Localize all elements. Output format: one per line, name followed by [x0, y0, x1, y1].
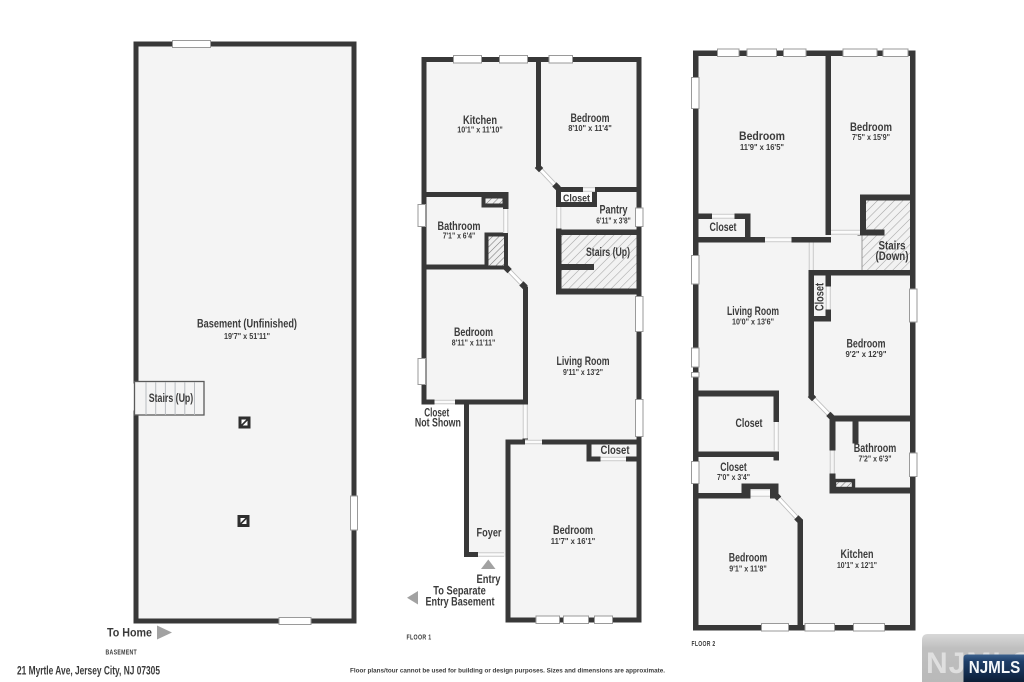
svg-text:Foyer: Foyer — [477, 528, 502, 540]
svg-text:7'0" x 3'4": 7'0" x 3'4" — [717, 472, 750, 482]
svg-text:Floor plans/tour cannot be use: Floor plans/tour cannot be used for buil… — [350, 668, 665, 675]
svg-text:Closet: Closet — [710, 222, 737, 234]
svg-text:11'7" x 16'1": 11'7" x 16'1" — [551, 536, 596, 546]
svg-text:FLOOR 1: FLOOR 1 — [407, 635, 432, 642]
svg-text:Not Shown: Not Shown — [415, 418, 461, 430]
svg-text:Closet: Closet — [736, 418, 763, 430]
svg-text:7'5" x 15'9": 7'5" x 15'9" — [852, 132, 890, 142]
svg-text:7'1" x 6'4": 7'1" x 6'4" — [443, 231, 476, 241]
svg-text:11'9" x 16'5": 11'9" x 16'5" — [740, 142, 784, 152]
svg-text:Basement (Unfinished): Basement (Unfinished) — [197, 319, 297, 331]
svg-text:10'0" x 13'6": 10'0" x 13'6" — [732, 317, 774, 327]
svg-text:Entry: Entry — [477, 574, 501, 586]
svg-text:7'2" x 6'3": 7'2" x 6'3" — [859, 454, 892, 464]
svg-text:Stairs (Up): Stairs (Up) — [149, 393, 194, 405]
svg-text:Closet: Closet — [815, 283, 827, 311]
svg-text:9'2" x 12'9": 9'2" x 12'9" — [846, 349, 887, 359]
svg-text:9'1" x 11'8": 9'1" x 11'8" — [729, 564, 767, 574]
svg-text:21 Myrtle Ave, Jersey City, NJ: 21 Myrtle Ave, Jersey City, NJ 07305 — [17, 666, 160, 678]
svg-text:Stairs (Up): Stairs (Up) — [586, 247, 630, 259]
svg-text:6'11" x 3'8": 6'11" x 3'8" — [596, 216, 631, 226]
svg-text:Closet: Closet — [563, 193, 590, 205]
svg-text:NJMLS: NJMLS — [969, 657, 1021, 677]
svg-text:10'1" x 11'10": 10'1" x 11'10" — [457, 125, 503, 135]
svg-text:9'11" x 13'2": 9'11" x 13'2" — [563, 367, 603, 377]
svg-text:Entry Basement: Entry Basement — [426, 597, 495, 609]
svg-text:To Home: To Home — [107, 627, 152, 639]
svg-text:8'11" x 11'11": 8'11" x 11'11" — [452, 338, 496, 348]
svg-text:FLOOR 2: FLOOR 2 — [692, 641, 716, 648]
svg-text:BASEMENT: BASEMENT — [106, 650, 138, 657]
svg-text:19'7" x 51'11": 19'7" x 51'11" — [224, 331, 270, 341]
svg-text:(Down): (Down) — [876, 251, 909, 263]
svg-text:8'10" x 11'4": 8'10" x 11'4" — [568, 123, 612, 133]
svg-text:Closet: Closet — [601, 445, 630, 457]
svg-text:10'1" x 12'1": 10'1" x 12'1" — [837, 560, 877, 570]
